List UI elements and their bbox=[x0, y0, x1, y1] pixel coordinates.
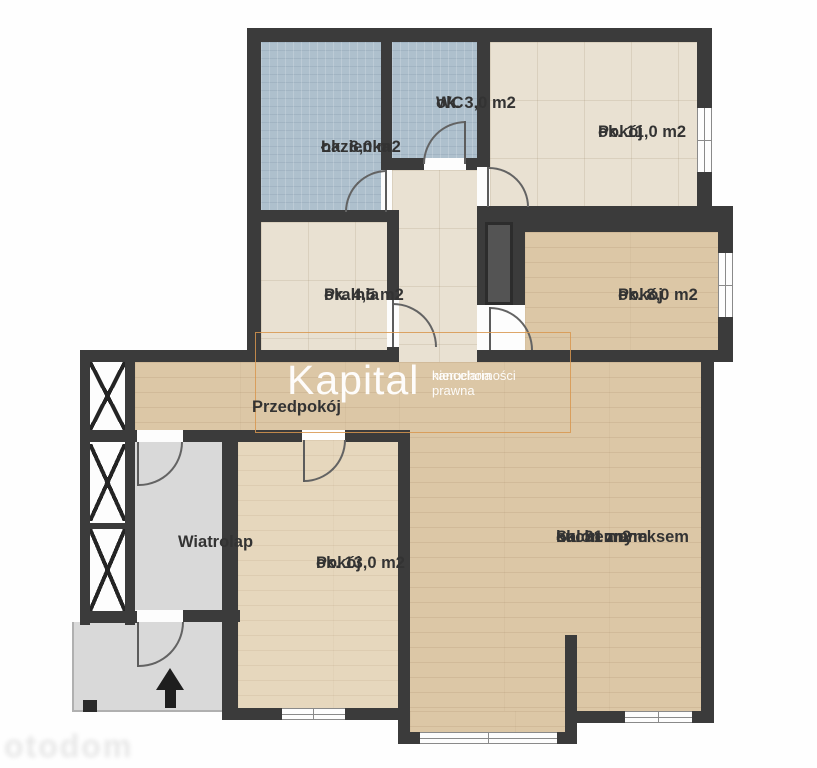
window-mullion bbox=[658, 711, 659, 723]
window-mullion bbox=[718, 285, 733, 286]
watermark-tagline-line2: kancelaria prawna bbox=[432, 368, 491, 398]
floor-salon-bay bbox=[410, 711, 565, 732]
room-area: ok. 8,0 m2 bbox=[321, 137, 401, 158]
room-name: Wiatrolap bbox=[178, 532, 253, 553]
wall-segment bbox=[697, 28, 712, 108]
corner-post bbox=[83, 700, 97, 712]
wall-segment bbox=[125, 355, 135, 625]
entrance-arrow-icon bbox=[156, 668, 184, 690]
wall-segment bbox=[466, 158, 477, 170]
window-mullion bbox=[488, 732, 489, 744]
wall-segment bbox=[247, 28, 261, 362]
wall-segment bbox=[513, 222, 525, 305]
door-leaf bbox=[137, 442, 139, 486]
door-leaf bbox=[487, 167, 489, 207]
room-area: ok. 8,0 m2 bbox=[618, 285, 698, 306]
room-area: ok. 3,0 m2 bbox=[436, 93, 516, 114]
room-area: ok. 13,0 m2 bbox=[316, 553, 405, 574]
watermark-brand: Kapital bbox=[287, 360, 419, 401]
wall-segment bbox=[565, 635, 577, 744]
wall-segment bbox=[697, 172, 712, 220]
wall-segment bbox=[222, 430, 238, 720]
wall-segment bbox=[565, 711, 625, 723]
door-opening bbox=[137, 430, 183, 442]
wall-segment bbox=[80, 430, 137, 442]
room-area: ok. 11,0 m2 bbox=[598, 122, 686, 143]
door-leaf bbox=[464, 121, 466, 164]
door-leaf bbox=[137, 622, 139, 667]
duct-hatch-box bbox=[90, 529, 125, 611]
wall-segment bbox=[392, 158, 424, 170]
duct-hatch-box bbox=[90, 362, 125, 430]
wall-segment bbox=[222, 708, 282, 720]
wall-segment bbox=[718, 220, 733, 253]
door-leaf bbox=[385, 170, 387, 212]
entrance-arrow-shaft bbox=[165, 688, 176, 708]
wall-segment bbox=[701, 350, 714, 723]
door-opening bbox=[137, 610, 183, 622]
wall-segment bbox=[80, 611, 137, 623]
wall-segment bbox=[80, 355, 90, 625]
window-mullion bbox=[313, 708, 314, 720]
wall-segment bbox=[247, 28, 712, 42]
duct-hatch-box bbox=[90, 444, 125, 521]
window-mullion bbox=[697, 140, 712, 141]
floor-plan: Łazienka ok. 8,0 m2 WC ok. 3,0 m2 Pokój … bbox=[0, 0, 817, 768]
room-name: Przedpokój bbox=[252, 397, 341, 418]
utility-shaft bbox=[485, 222, 513, 305]
wall-segment bbox=[398, 430, 410, 744]
room-area: ok. 31 m2 bbox=[556, 527, 631, 548]
room-area: ok. 4,5 m2 bbox=[324, 285, 404, 306]
door-leaf bbox=[303, 440, 305, 482]
wall-segment bbox=[398, 732, 420, 744]
corner-watermark: otodom bbox=[4, 728, 133, 765]
